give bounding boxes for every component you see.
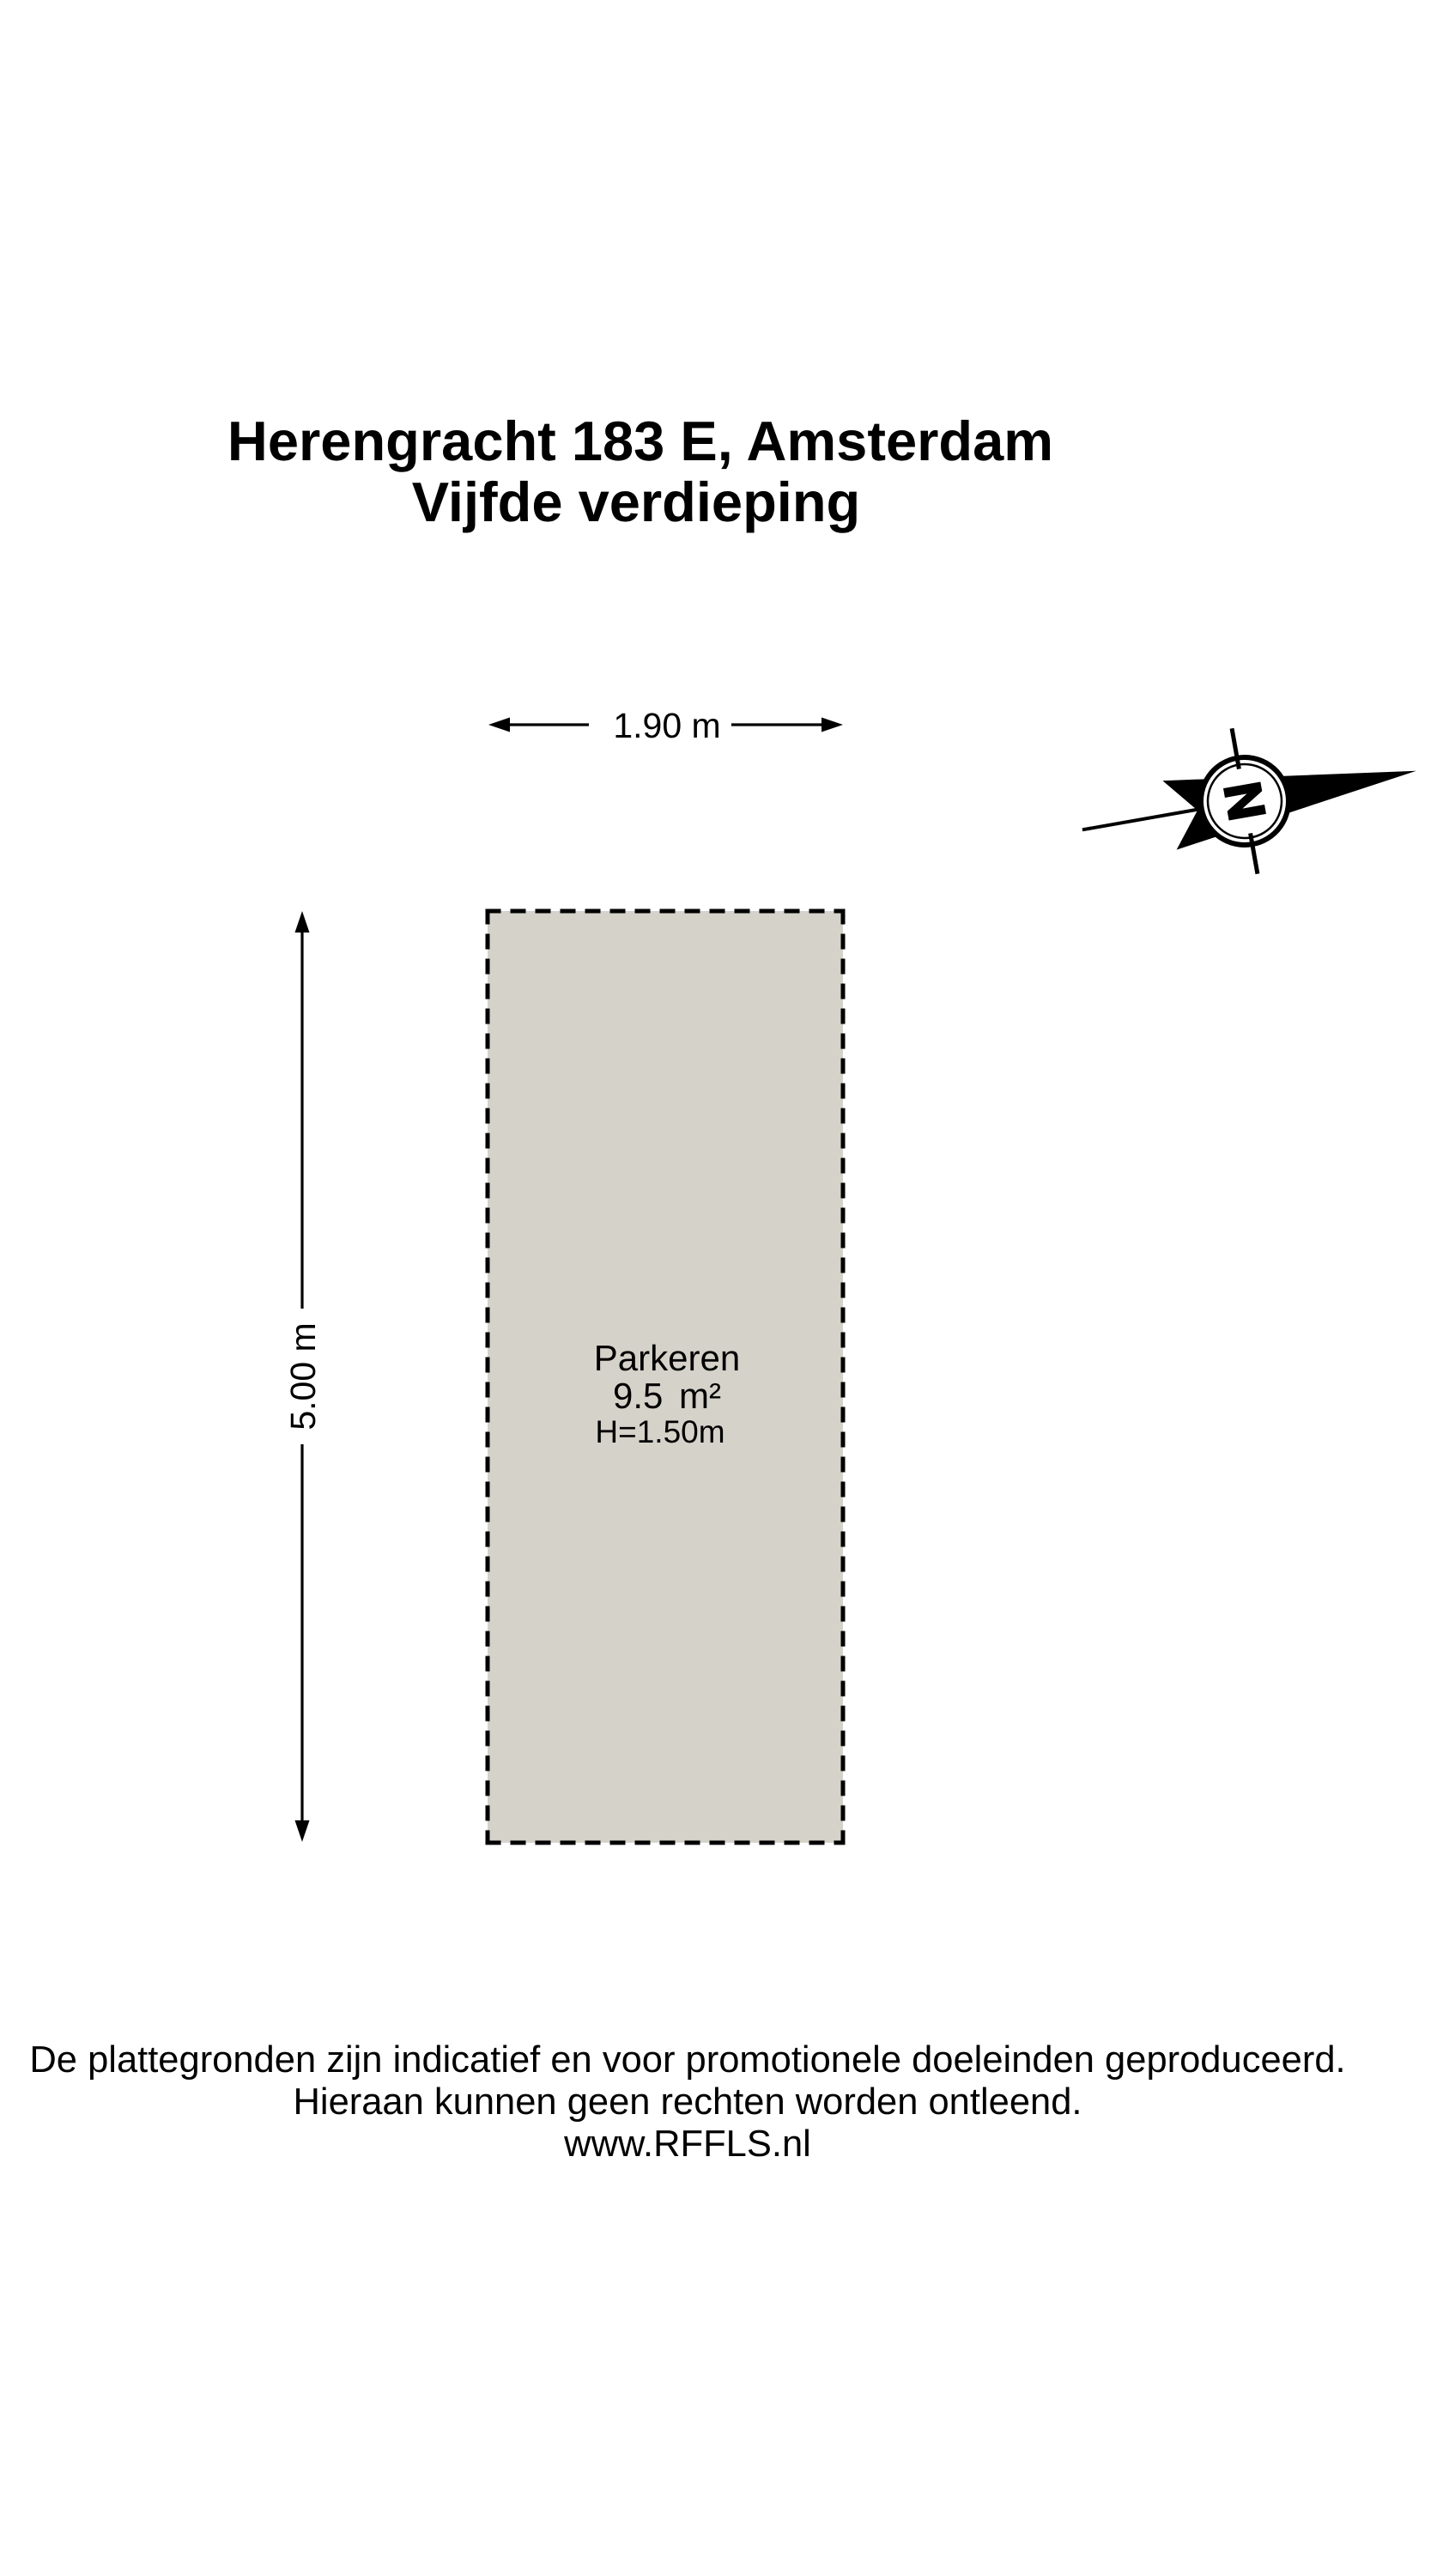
svg-text:9.5 m²: 9.5 m² xyxy=(613,1376,721,1416)
svg-text:De plattegronden zijn indicati: De plattegronden zijn indicatief en voor… xyxy=(29,2039,1345,2081)
svg-text:Vijfde verdieping: Vijfde verdieping xyxy=(412,471,861,533)
svg-text:www.RFFLS.nl: www.RFFLS.nl xyxy=(563,2123,811,2165)
svg-text:Hieraan kunnen geen rechten wo: Hieraan kunnen geen rechten worden ontle… xyxy=(293,2081,1082,2123)
svg-text:Herengracht 183 E, Amsterdam: Herengracht 183 E, Amsterdam xyxy=(227,410,1053,472)
svg-text:5.00 m: 5.00 m xyxy=(283,1322,323,1430)
svg-text:H=1.50m: H=1.50m xyxy=(595,1414,724,1449)
svg-text:Parkeren: Parkeren xyxy=(594,1338,740,1378)
svg-text:1.90 m: 1.90 m xyxy=(613,706,720,745)
